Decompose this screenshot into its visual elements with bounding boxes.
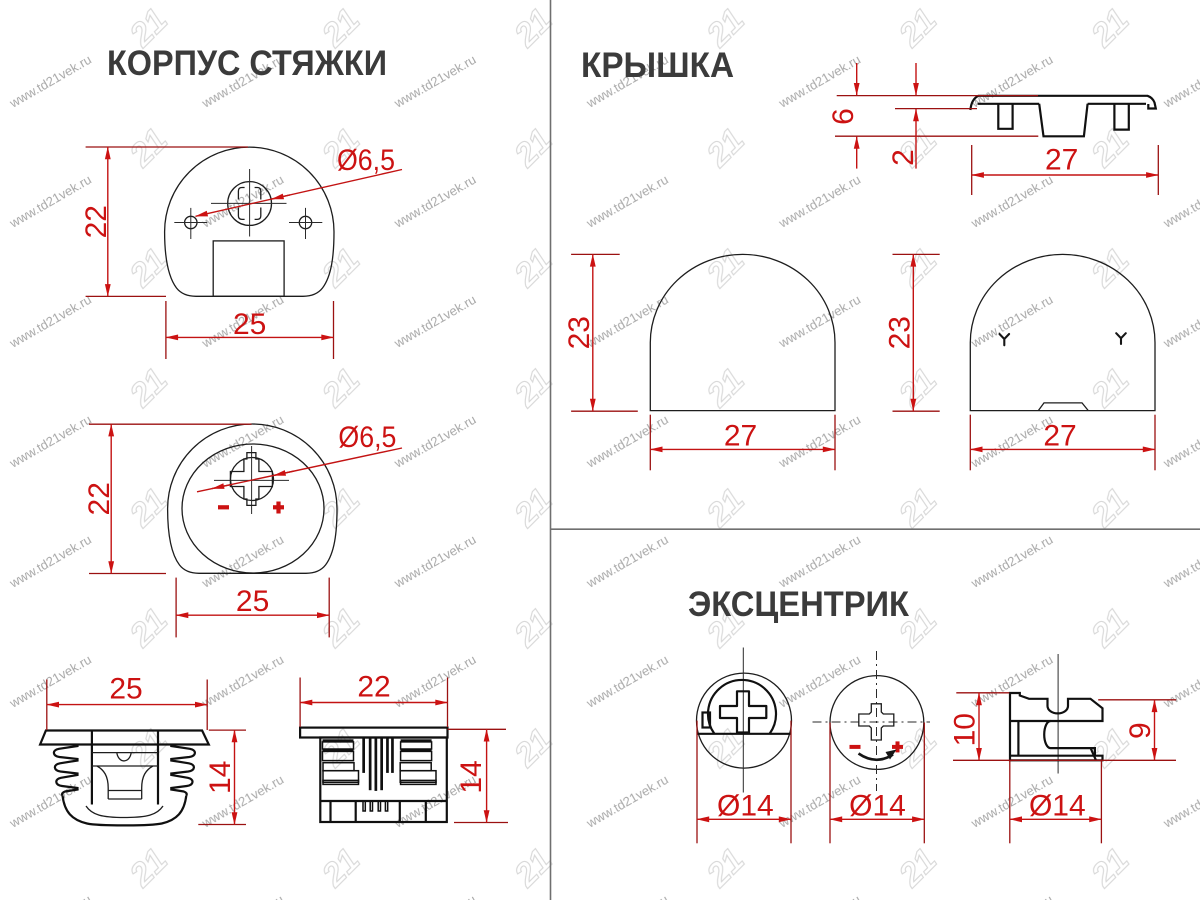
svg-text:23: 23 <box>563 316 596 349</box>
svg-text:Ø14: Ø14 <box>1029 790 1086 823</box>
svg-text:Ø6,5: Ø6,5 <box>337 144 395 177</box>
svg-text:27: 27 <box>1045 144 1078 177</box>
svg-text:10: 10 <box>949 713 982 746</box>
svg-text:9: 9 <box>1124 722 1157 739</box>
svg-text:25: 25 <box>233 308 266 341</box>
svg-text:КОРПУС СТЯЖКИ: КОРПУС СТЯЖКИ <box>107 44 387 83</box>
svg-text:25: 25 <box>109 672 142 705</box>
svg-text:ЭКСЦЕНТРИК: ЭКСЦЕНТРИК <box>688 585 910 624</box>
svg-text:22: 22 <box>357 671 390 704</box>
svg-text:23: 23 <box>884 316 917 349</box>
svg-text:14: 14 <box>455 760 488 793</box>
svg-text:КРЫШКА: КРЫШКА <box>581 46 734 85</box>
svg-text:27: 27 <box>724 420 757 453</box>
svg-text:2: 2 <box>887 149 920 166</box>
svg-text:6: 6 <box>827 108 860 125</box>
svg-text:Ø14: Ø14 <box>717 790 774 823</box>
svg-text:Ø14: Ø14 <box>849 790 906 823</box>
svg-text:27: 27 <box>1043 420 1076 453</box>
svg-text:Ø6,5: Ø6,5 <box>338 421 396 454</box>
svg-text:14: 14 <box>204 761 237 794</box>
svg-text:22: 22 <box>83 482 116 515</box>
svg-text:25: 25 <box>236 585 269 618</box>
svg-text:22: 22 <box>80 205 113 238</box>
